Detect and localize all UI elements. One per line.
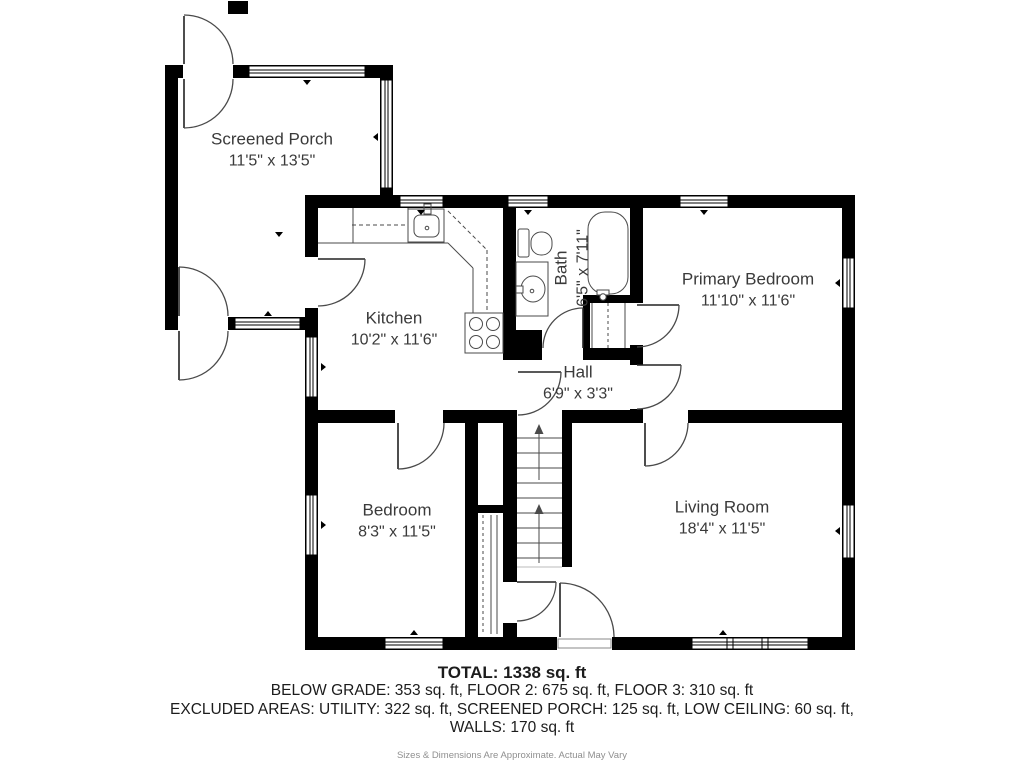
living-room-door — [645, 423, 688, 466]
bath-vanity — [516, 262, 548, 316]
primary-bedroom-closet — [592, 303, 625, 348]
floorplan-canvas: Screened Porch 11'5" x 13'5" Kitchen 10'… — [0, 0, 1024, 768]
kitchen-counter — [318, 208, 487, 313]
hall-primary-bedroom-door — [637, 365, 681, 409]
porch-window-top — [249, 66, 365, 77]
walls-area: WALLS: 170 sq. ft — [0, 719, 1024, 738]
toilet — [518, 229, 552, 257]
room-dimensions: 10'2" x 11'6" — [351, 330, 438, 351]
room-dimensions: 8'3" x 11'5" — [358, 522, 436, 543]
room-name: Kitchen — [351, 308, 438, 330]
room-dimensions: 11'5" x 13'5" — [211, 151, 333, 172]
stairs-up-arrow-2 — [535, 504, 544, 563]
kitchen-window-top — [400, 196, 443, 207]
room-name: Bedroom — [358, 500, 436, 522]
room-label-primary-bedroom: Primary Bedroom 11'10" x 11'6" — [682, 269, 814, 312]
stairs-up-arrow-1 — [535, 424, 544, 480]
primary-bedroom-window-top — [680, 196, 728, 207]
excluded-areas: EXCLUDED AREAS: UTILITY: 322 sq. ft, SCR… — [0, 701, 1024, 720]
room-label-bedroom: Bedroom 8'3" x 11'5" — [358, 500, 436, 543]
primary-closet-door — [637, 305, 679, 347]
room-name: Bath — [551, 229, 573, 307]
bath-door — [543, 308, 583, 348]
room-label-living-room: Living Room 18'4" x 11'5" — [675, 497, 770, 540]
area-summary: TOTAL: 1338 sq. ft BELOW GRADE: 353 sq. … — [0, 663, 1024, 738]
room-label-hall: Hall 6'9" x 3'3" — [543, 362, 613, 405]
bedroom-closet — [483, 515, 497, 634]
disclaimer-text: Sizes & Dimensions Are Approximate. Actu… — [0, 750, 1024, 761]
room-name: Primary Bedroom — [682, 269, 814, 291]
bathtub — [588, 212, 628, 300]
kitchen-porch-door — [318, 259, 365, 306]
porch-window-right — [381, 80, 392, 188]
room-dimensions: 18'4" x 11'5" — [675, 519, 770, 540]
kitchen-sink — [408, 204, 444, 242]
floorplan-drawing — [0, 0, 1024, 768]
bedroom-window-bottom — [385, 638, 443, 649]
stove — [465, 313, 503, 353]
porch-window-bottom — [235, 318, 300, 329]
under-stair-door — [517, 582, 556, 621]
room-label-kitchen: Kitchen 10'2" x 11'6" — [351, 308, 438, 351]
room-name: Screened Porch — [211, 129, 333, 151]
staircase — [517, 424, 562, 567]
floor-areas: BELOW GRADE: 353 sq. ft, FLOOR 2: 675 sq… — [0, 682, 1024, 701]
entry-threshold — [558, 639, 611, 648]
bedroom-door — [398, 423, 444, 469]
room-dimensions: 6'9" x 3'3" — [543, 384, 613, 405]
front-entry-door — [560, 583, 614, 637]
total-area: TOTAL: 1338 sq. ft — [0, 663, 1024, 682]
chimney-block — [228, 1, 248, 14]
kitchen-window-left — [306, 337, 317, 397]
room-label-bath: Bath 6'5" x 7'11" — [551, 229, 594, 307]
room-name: Living Room — [675, 497, 770, 519]
room-dimensions: 6'5" x 7'11" — [573, 229, 594, 307]
bath-window-top — [508, 196, 548, 207]
primary-bedroom-window-right — [843, 258, 854, 308]
room-name: Hall — [543, 362, 613, 384]
room-label-screened-porch: Screened Porch 11'5" x 13'5" — [211, 129, 333, 172]
living-room-window-right — [843, 505, 854, 558]
living-room-window-bottom — [692, 638, 808, 649]
room-dimensions: 11'10" x 11'6" — [682, 291, 814, 312]
bedroom-window-left — [306, 495, 317, 555]
